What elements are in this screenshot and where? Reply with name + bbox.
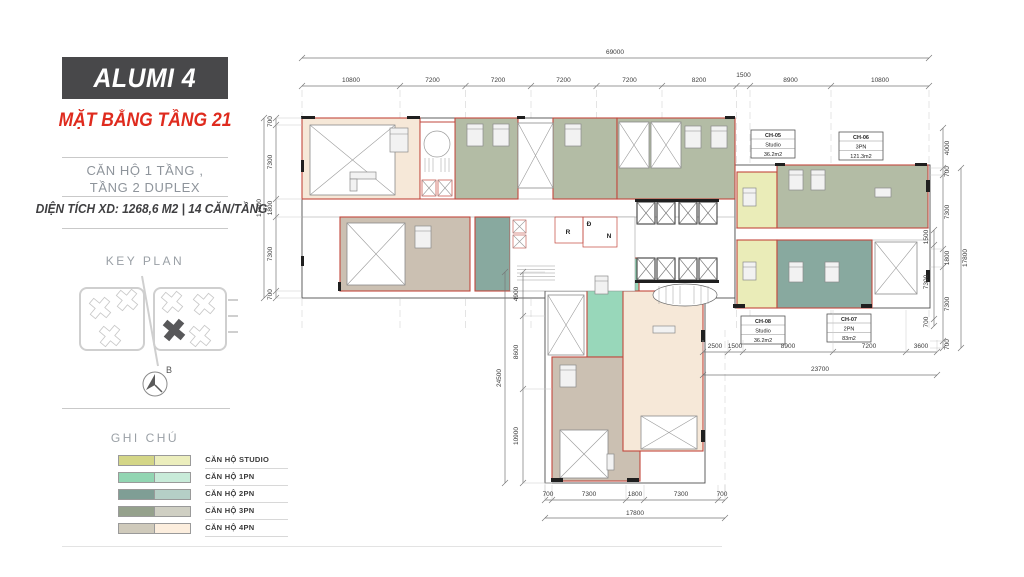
description-line1: CĂN HỘ 1 TẦNG ,: [40, 162, 250, 179]
unit-area: 121.3m2: [850, 154, 871, 160]
svg-text:7300: 7300: [923, 274, 930, 289]
key-plan-map: B: [70, 272, 240, 402]
current-building-marker: [158, 314, 191, 347]
compass-label: B: [166, 365, 172, 375]
unit-id: CH-07: [841, 317, 857, 323]
svg-text:700: 700: [923, 316, 930, 327]
svg-text:4900: 4900: [513, 286, 520, 301]
svg-text:700: 700: [717, 491, 728, 498]
swatch-light: [155, 523, 192, 534]
brand-box: ALUMI 4: [62, 57, 228, 99]
divider: [62, 196, 228, 197]
unit-id: CH-08: [755, 319, 771, 325]
unit-area: 83m2: [842, 336, 856, 342]
unit-3pn-b: [553, 118, 617, 199]
svg-text:1500: 1500: [736, 72, 751, 79]
svg-text:700: 700: [543, 491, 554, 498]
svg-text:8900: 8900: [783, 77, 798, 84]
svg-text:7300: 7300: [674, 491, 689, 498]
page-title: MẶT BẰNG TẦNG 21: [44, 110, 246, 132]
swatch-dark: [118, 506, 155, 517]
swatch-dark: [118, 472, 155, 483]
key-plan-roads: [80, 276, 238, 366]
divider: [62, 157, 228, 158]
unit-type: 2PN: [844, 327, 855, 333]
svg-text:700: 700: [267, 289, 274, 300]
unit-tag-ch05: CH-05 Studio 36.2m2: [751, 130, 795, 158]
dimension-bottom-right: 2500 1500 8900 7200 3600 23700: [700, 310, 940, 378]
svg-text:700: 700: [944, 339, 951, 350]
dimension-bottom: 700 7300 1800 7300 700 17800: [542, 485, 728, 521]
svg-text:10900: 10900: [513, 427, 520, 445]
legend-title: GHI CHÚ: [40, 431, 250, 445]
apartment-description: CĂN HỘ 1 TẦNG , TẦNG 2 DUPLEX: [40, 162, 250, 196]
unit-tag-ch06: CH-06 3PN 121.3m2: [839, 132, 883, 160]
core-room-r: R: [566, 229, 571, 236]
svg-text:1800: 1800: [628, 491, 643, 498]
unit-tag-ch08: CH-08 Studio 36.2m2: [741, 316, 785, 344]
units: [302, 118, 928, 481]
stair-core: [420, 122, 455, 199]
north-compass-icon: B: [143, 365, 172, 396]
key-plan-buildings: [84, 284, 219, 351]
floor-plan-drawing: R Đ N: [255, 30, 990, 575]
core-room-d: Đ: [587, 221, 592, 228]
dim-right-top: 4000: [944, 140, 951, 155]
svg-text:3600: 3600: [914, 343, 929, 350]
dim-total: 17800: [962, 249, 969, 267]
swatch-dark: [118, 523, 155, 534]
swatch-light: [155, 472, 192, 483]
dim-total: 69000: [606, 49, 624, 56]
svg-text:8600: 8600: [513, 344, 520, 359]
svg-text:7300: 7300: [267, 246, 274, 261]
central-core: R Đ N: [510, 217, 635, 291]
brand-title: ALUMI 4: [94, 63, 197, 94]
unit-type: Studio: [765, 143, 781, 149]
dimension-top: 69000 10800 7200 7200 7200 7200 8200 150…: [299, 49, 932, 89]
swatch-light: [155, 506, 192, 517]
svg-text:7300: 7300: [267, 154, 274, 169]
key-plan-title: KEY PLAN: [40, 254, 250, 268]
swatch-light: [155, 455, 192, 466]
svg-text:1800: 1800: [267, 200, 274, 215]
dimension-wing-left: 4900 8600 10900 24500: [496, 269, 552, 486]
svg-text:700: 700: [267, 116, 274, 127]
unit-area: 36.2m2: [754, 338, 772, 344]
svg-text:8200: 8200: [692, 77, 707, 84]
svg-text:7200: 7200: [425, 77, 440, 84]
unit-id: CH-06: [853, 135, 869, 141]
svg-text:1500: 1500: [728, 343, 743, 350]
svg-text:1500: 1500: [923, 229, 930, 244]
svg-text:7300: 7300: [944, 296, 951, 311]
core-room-n: N: [607, 233, 612, 240]
svg-text:10800: 10800: [871, 77, 889, 84]
svg-text:700: 700: [944, 166, 951, 177]
svg-text:10800: 10800: [342, 77, 360, 84]
svg-text:7300: 7300: [944, 204, 951, 219]
divider: [62, 228, 228, 229]
svg-text:7200: 7200: [862, 343, 877, 350]
dim-total: 17800: [256, 199, 263, 217]
unit-area: 36.2m2: [764, 152, 782, 158]
unit-type: Studio: [755, 329, 771, 335]
dimension-left: 17800 700 7300 1800 7300 700: [256, 115, 302, 301]
swatch-dark: [118, 489, 155, 500]
svg-text:7300: 7300: [582, 491, 597, 498]
svg-text:7200: 7200: [491, 77, 506, 84]
description-line2: TẦNG 2 DUPLEX: [40, 179, 250, 196]
area-info: DIỆN TÍCH XD: 1268,6 M2 | 14 CĂN/TẦNG: [36, 202, 255, 216]
svg-text:2500: 2500: [708, 343, 723, 350]
swatch-dark: [118, 455, 155, 466]
unit-tag-ch07: CH-07 2PN 83m2: [827, 314, 871, 342]
unit-type: 3PN: [856, 145, 867, 151]
svg-text:1800: 1800: [944, 250, 951, 265]
dim-total: 24500: [496, 369, 503, 387]
svg-text:7200: 7200: [556, 77, 571, 84]
svg-text:7200: 7200: [622, 77, 637, 84]
scissor-stair: [653, 284, 717, 306]
page: ALUMI 4 MẶT BẰNG TẦNG 21 CĂN HỘ 1 TẦNG ,…: [0, 0, 1024, 577]
dim-total: 17800: [626, 510, 644, 517]
svg-text:8900: 8900: [781, 343, 796, 350]
dimension-right: 4000 700 7300 1800 7300 700 17800 1500 7…: [923, 125, 969, 351]
swatch-light: [155, 489, 192, 500]
divider: [62, 408, 230, 409]
unit-id: CH-05: [765, 133, 781, 139]
dim-total: 23700: [811, 366, 829, 373]
